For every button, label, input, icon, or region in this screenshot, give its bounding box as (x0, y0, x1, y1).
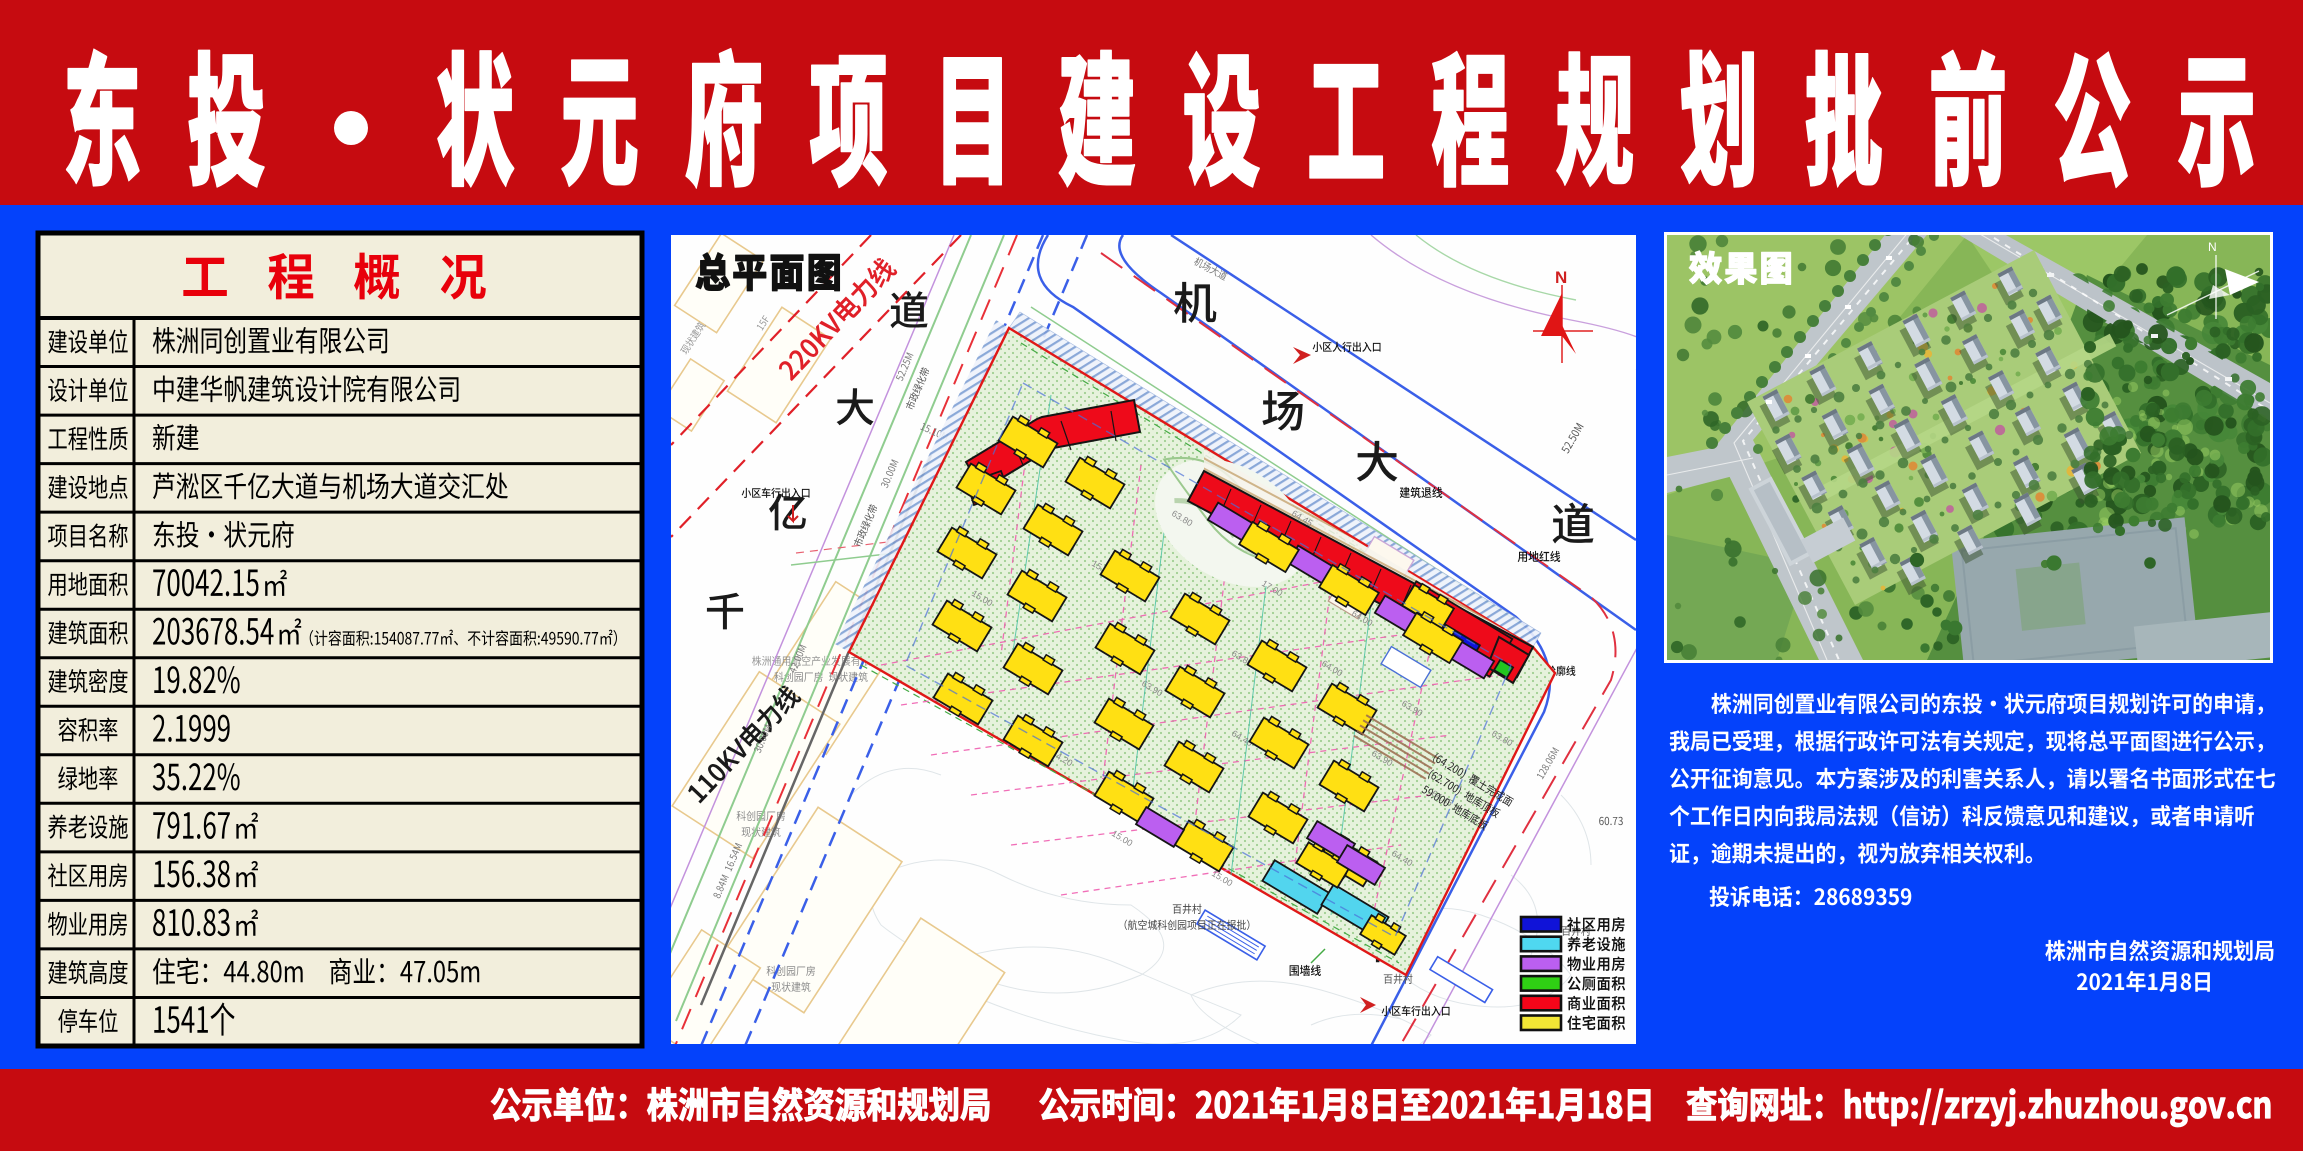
svg-text:N: N (1555, 268, 1567, 287)
svg-text:N: N (2208, 240, 2217, 254)
